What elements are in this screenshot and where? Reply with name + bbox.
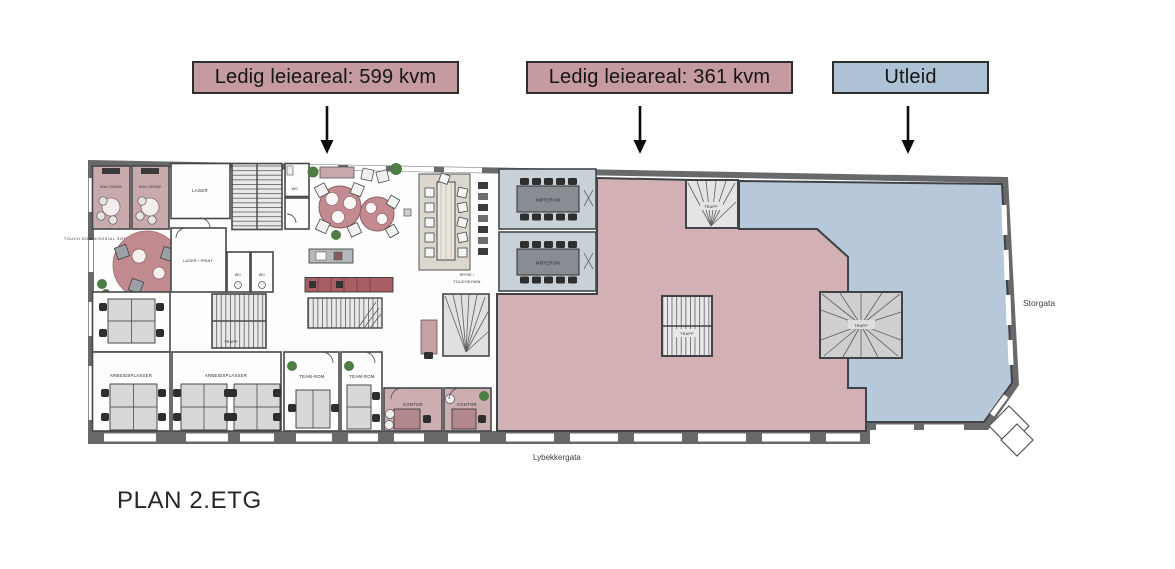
room-label: WC	[292, 187, 299, 191]
room-label: TEAM-ROM	[349, 374, 375, 379]
room-label: WC	[235, 273, 242, 277]
room-label: MØTEROM	[536, 198, 560, 203]
room-label: MULTIROM	[139, 185, 161, 189]
room-label: KONTOR	[457, 402, 477, 407]
arrow-down-1	[321, 106, 334, 154]
room-kontor-1: KONTOR	[384, 388, 442, 431]
room-label: ARBEIDSPLASSER	[110, 373, 152, 378]
legend-arrows	[321, 106, 915, 154]
room-booth-top	[285, 198, 309, 229]
room-label: KONTOR	[403, 402, 423, 407]
zone-label: TOUCH DOWN/SOSIAL SONE	[64, 237, 130, 241]
room-wc-top: WC	[285, 164, 309, 197]
room-label: LAGER	[192, 188, 208, 193]
room-moterom-1: MØTEROM	[499, 169, 596, 229]
stair-top-left	[232, 164, 282, 230]
arrow-down-3	[902, 106, 915, 154]
room-team-rom-1: TEAM-ROM	[284, 352, 339, 431]
street-label-storgata: Storgata	[1023, 298, 1055, 308]
stair-pink-right: TRAPP	[820, 292, 902, 358]
room-label: MØTEROM	[536, 261, 560, 266]
stair-middle	[305, 278, 393, 329]
room-desks	[93, 292, 171, 352]
room-kontor-2: KONTOR	[444, 388, 491, 431]
room-label: LAGER / PRINT	[183, 259, 214, 263]
room-label: TRAPP	[680, 332, 694, 336]
room-multirom-2: MULTIROM	[132, 166, 169, 229]
room-multirom-1: MULTIROM	[93, 166, 131, 229]
floor-plan: MULTIROM MULTIROM LAGER WC	[0, 0, 1175, 569]
plan-title: PLAN 2.ETG	[117, 487, 262, 514]
room-wc-1: WC	[227, 252, 250, 292]
room-wc-2: WC	[251, 252, 273, 292]
room-label: TRAPP	[224, 340, 238, 344]
room-label: TOUCHDOWN	[453, 280, 480, 284]
room-lager: LAGER	[171, 164, 230, 229]
room-lager-print: LAGER / PRINT	[171, 228, 226, 292]
room-arbeidsplasser-1: ARBEIDSPLASSER	[93, 352, 171, 431]
stair-pink-left: TRAPP	[662, 296, 712, 356]
arrow-down-2	[634, 106, 647, 154]
room-moterom-2: MØTEROM	[499, 232, 596, 291]
stair-left: TRAPP	[212, 294, 266, 348]
room-label: SPISE /	[460, 273, 475, 277]
room-label: TEAM-ROM	[299, 374, 325, 379]
zone-touch-down: TOUCH DOWN/SOSIAL SONE	[64, 231, 181, 299]
room-arbeidsplasser-2: ARBEIDSPLASSER	[172, 352, 281, 431]
room-label: TRAPP	[854, 324, 868, 328]
room-label: TRAPP	[704, 205, 718, 209]
room-team-rom-2: TEAM-ROM	[341, 352, 382, 431]
room-label: ARBEIDSPLASSER	[205, 373, 247, 378]
room-label: MULTIROM	[100, 185, 122, 189]
room-label: WC	[259, 273, 266, 277]
street-label-lybekkergata: Lybekkergata	[533, 453, 581, 462]
stair-pink-top: TRAPP	[686, 180, 738, 228]
